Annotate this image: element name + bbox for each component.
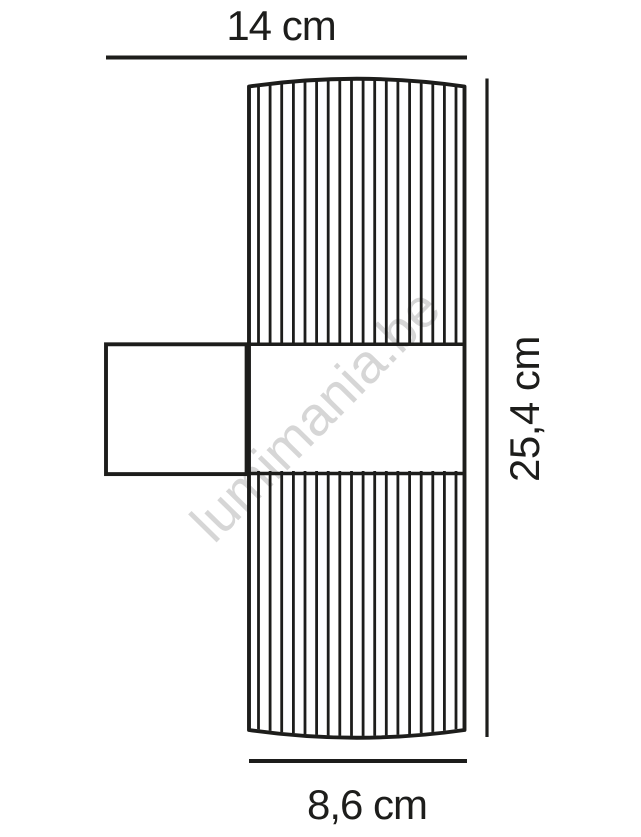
svg-text:14 cm: 14 cm [226,2,335,49]
svg-text:25,4 cm: 25,4 cm [501,336,548,482]
svg-text:8,6 cm: 8,6 cm [307,781,427,828]
